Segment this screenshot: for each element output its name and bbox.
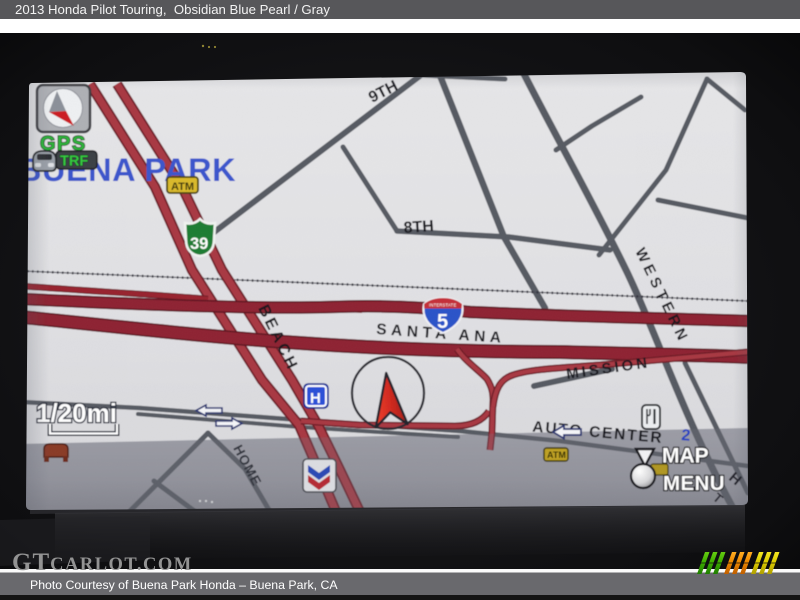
svg-text:2013 Honda Pilot Touring, Obs: 2013 Honda Pilot Touring, Obsidian Blue …: [15, 2, 330, 17]
svg-text:Photo Courtesy of Buena Park H: Photo Courtesy of Buena Park Honda – Bue…: [30, 578, 338, 592]
